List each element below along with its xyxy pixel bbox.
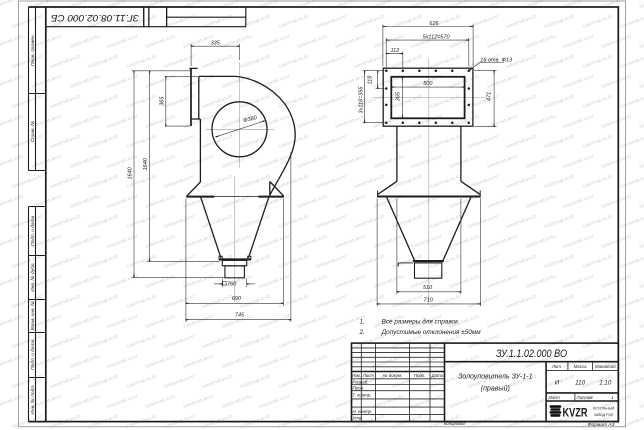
svg-text:Взам. инв. №: Взам. инв. № [30,301,36,331]
svg-text:690: 690 [232,296,242,302]
svg-text:5х112=570: 5х112=570 [423,35,451,41]
svg-text:110: 110 [575,379,585,386]
svg-text:Подп. и дата: Подп. и дата [30,215,36,245]
svg-text:1640: 1640 [128,166,134,179]
svg-text:Копировал: Копировал [444,421,466,426]
svg-text:112: 112 [391,48,400,54]
svg-text:16 отв. Ф13: 16 отв. Ф13 [480,57,513,63]
svg-text:Справ. №: Справ. № [30,121,36,143]
svg-text:Все размеры для справок: Все размеры для справок [382,318,460,326]
svg-text:760: 760 [227,282,237,288]
svg-text:118: 118 [368,75,374,85]
svg-text:626: 626 [429,21,439,27]
svg-text:365: 365 [395,91,401,101]
svg-text:745: 745 [235,312,245,318]
svg-text:3х118=355: 3х118=355 [359,86,365,114]
svg-text:Масса: Масса [574,364,588,369]
svg-text:Подп. и дата: Подп. и дата [30,339,36,369]
svg-text:(правый): (правый) [481,384,510,392]
svg-text:№ докум.: № докум. [383,373,402,378]
svg-text:710: 710 [424,298,434,304]
svg-text:1540: 1540 [143,157,149,170]
svg-text:335: 335 [211,41,221,47]
svg-text:365: 365 [159,96,165,106]
svg-text:1:10: 1:10 [599,379,612,386]
svg-text:Инв. № подл.: Инв. № подл. [30,385,36,415]
svg-text:Формат А3: Формат А3 [588,422,615,428]
svg-text:Т. контр.: Т. контр. [353,392,372,397]
svg-text:Пров.: Пров. [353,386,365,391]
svg-text:1.: 1. [360,319,365,326]
svg-text:Подп.: Подп. [414,373,426,378]
svg-text:471: 471 [487,92,493,101]
svg-text:КОТЕЛЬНЫЙ: КОТЕЛЬНЫЙ [593,406,615,410]
svg-text:Листов: Листов [576,395,594,400]
svg-text:Золоуловитель ЗУ-1-1: Золоуловитель ЗУ-1-1 [458,374,533,381]
svg-text:Масштаб: Масштаб [595,364,616,369]
svg-text:Инв. № дубл.: Инв. № дубл. [30,262,36,292]
svg-text:KVZR: KVZR [563,405,588,419]
svg-text:Лит.: Лит. [551,364,562,369]
svg-text:Допустимые отклонения ±50мм: Допустимые отклонения ±50мм [381,329,482,336]
svg-text:ЗАВОД РЭП: ЗАВОД РЭП [594,413,614,417]
svg-text:Лист: Лист [362,373,375,378]
svg-text:510: 510 [423,285,433,291]
svg-text:2.: 2. [359,329,365,336]
svg-text:500: 500 [423,81,433,87]
svg-text:ЗУ.1.1.02.000 ВО: ЗУ.1.1.02.000 ВО [496,348,568,360]
svg-text:Лист: Лист [548,395,561,400]
svg-text:Н. контр.: Н. контр. [353,409,373,414]
svg-text:Изм.: Изм. [352,373,361,378]
svg-text:Утв.: Утв. [353,416,363,421]
svg-text:Перв. примен.: Перв. примен. [30,34,36,66]
svg-text:И: И [555,379,560,386]
svg-text:Разраб.: Разраб. [353,380,369,385]
svg-text:ЗГ.11.08.02.000 СБ: ЗГ.11.08.02.000 СБ [51,13,139,23]
svg-text:Дата: Дата [431,373,444,378]
